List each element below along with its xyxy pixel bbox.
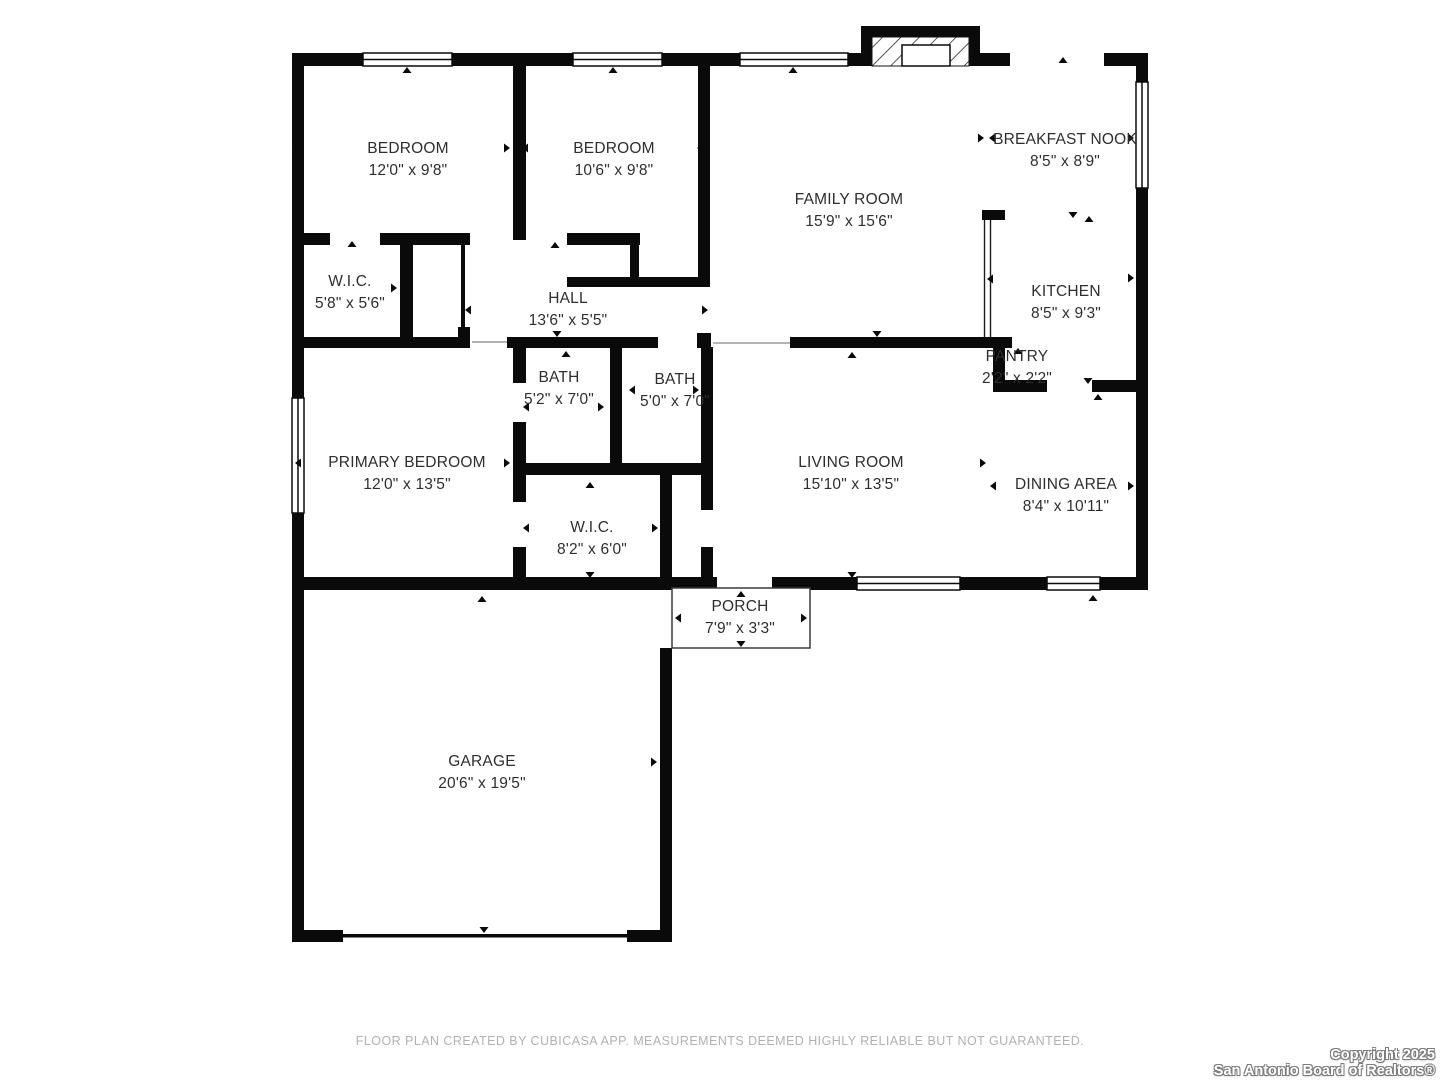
room-label-dining-area: DINING AREA 8'4" x 10'11" <box>1015 474 1117 518</box>
room-name: BEDROOM <box>573 138 655 160</box>
room-label-kitchen: KITCHEN 8'5" x 9'3" <box>1031 281 1101 325</box>
fireplace-icon <box>861 26 980 66</box>
room-label-garage: GARAGE 20'6" x 19'5" <box>438 751 526 795</box>
room-label-bedroom-1: BEDROOM 12'0" x 9'8" <box>367 138 449 182</box>
room-dimensions: 2'2" x 2'2" <box>982 368 1052 390</box>
room-name: GARAGE <box>438 751 526 773</box>
room-name: FAMILY ROOM <box>795 189 903 211</box>
copyright-notice: Copyright 2025 San Antonio Board of Real… <box>1214 1047 1435 1079</box>
room-label-hall: HALL 13'6" x 5'5" <box>529 288 608 332</box>
room-dimensions: 20'6" x 19'5" <box>438 773 526 795</box>
room-label-pantry: PANTRY 2'2" x 2'2" <box>982 346 1052 390</box>
room-dimensions: 13'6" x 5'5" <box>529 310 608 332</box>
room-label-porch: PORCH 7'9" x 3'3" <box>705 596 775 640</box>
room-name: PRIMARY BEDROOM <box>328 452 485 474</box>
room-name: BATH <box>640 369 710 391</box>
room-name: LIVING ROOM <box>798 452 904 474</box>
room-name: KITCHEN <box>1031 281 1101 303</box>
room-name: W.I.C. <box>315 271 385 293</box>
room-name: HALL <box>529 288 608 310</box>
copyright-line-2: San Antonio Board of Realtors® <box>1214 1063 1435 1079</box>
room-dimensions: 5'2" x 7'0" <box>524 389 594 411</box>
room-label-wic-2: W.I.C. 8'2" x 6'0" <box>557 517 627 561</box>
floor-plan-drawing <box>0 0 1440 1080</box>
room-dimensions: 8'4" x 10'11" <box>1015 496 1117 518</box>
room-dimensions: 12'0" x 13'5" <box>328 474 485 496</box>
room-name: BEDROOM <box>367 138 449 160</box>
room-name: PORCH <box>705 596 775 618</box>
room-dimensions: 8'2" x 6'0" <box>557 539 627 561</box>
room-dimensions: 15'10" x 13'5" <box>798 474 904 496</box>
floor-plan-page: BEDROOM 12'0" x 9'8" BEDROOM 10'6" x 9'8… <box>0 0 1440 1080</box>
room-name: PANTRY <box>982 346 1052 368</box>
room-dimensions: 12'0" x 9'8" <box>367 160 449 182</box>
room-name: DINING AREA <box>1015 474 1117 496</box>
disclaimer-text: FLOOR PLAN CREATED BY CUBICASA APP. MEAS… <box>0 1034 1440 1048</box>
room-dimensions: 10'6" x 9'8" <box>573 160 655 182</box>
copyright-line-1: Copyright 2025 <box>1214 1047 1435 1063</box>
room-name: BATH <box>524 367 594 389</box>
room-name: W.I.C. <box>557 517 627 539</box>
room-dimensions: 15'9" x 15'6" <box>795 211 903 233</box>
garage-door <box>343 934 627 938</box>
room-label-primary-bedroom: PRIMARY BEDROOM 12'0" x 13'5" <box>328 452 485 496</box>
room-dimensions: 5'8" x 5'6" <box>315 293 385 315</box>
room-dimensions: 8'5" x 9'3" <box>1031 303 1101 325</box>
room-label-bath-1: BATH 5'2" x 7'0" <box>524 367 594 411</box>
room-dimensions: 5'0" x 7'0" <box>640 391 710 413</box>
room-label-bath-2: BATH 5'0" x 7'0" <box>640 369 710 413</box>
room-label-bedroom-2: BEDROOM 10'6" x 9'8" <box>573 138 655 182</box>
room-label-breakfast-nook: BREAKFAST NOOK 8'5" x 8'9" <box>993 129 1137 173</box>
room-label-living-room: LIVING ROOM 15'10" x 13'5" <box>798 452 904 496</box>
room-dimensions: 7'9" x 3'3" <box>705 618 775 640</box>
room-name: BREAKFAST NOOK <box>993 129 1137 151</box>
room-dimensions: 8'5" x 8'9" <box>993 151 1137 173</box>
room-label-family-room: FAMILY ROOM 15'9" x 15'6" <box>795 189 903 233</box>
room-label-wic-1: W.I.C. 5'8" x 5'6" <box>315 271 385 315</box>
